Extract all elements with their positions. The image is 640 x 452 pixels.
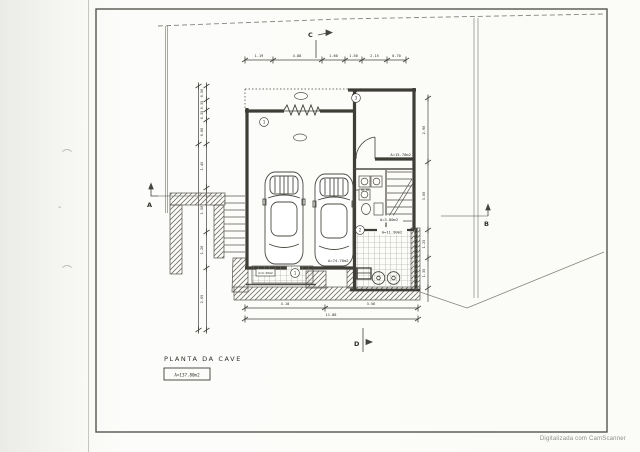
wc-fixtures xyxy=(359,176,383,215)
dim-left-7: 1.20 xyxy=(200,246,204,255)
storage-area-label: A=15.70m2 xyxy=(390,152,411,157)
dim-top-3: 1.60 xyxy=(329,54,338,58)
porch xyxy=(246,266,316,285)
plan-title: PLANTA DA CAVE xyxy=(164,355,242,363)
scanned-floorplan-page: C A B D xyxy=(0,0,640,452)
dim-left-3: 0.35 xyxy=(200,111,204,120)
section-marker-b: B xyxy=(484,220,489,228)
car-icon xyxy=(313,174,355,266)
dim-top-6: 0.70 xyxy=(392,54,401,58)
garage-level-marks xyxy=(294,93,308,142)
dim-left-6: 1.50 xyxy=(200,206,204,215)
dim-bottom-2: 3.56 xyxy=(367,302,376,306)
dim-right-4: 1.35 xyxy=(422,269,426,278)
garage-area-label: A=74.70m2 xyxy=(328,258,349,263)
dim-top-4: 1.50 xyxy=(349,54,358,58)
exterior-stairs xyxy=(224,196,245,252)
storage-room xyxy=(348,88,416,230)
dim-top-5: 2.15 xyxy=(370,54,379,58)
dim-left-5: 1.45 xyxy=(200,162,204,171)
dim-right-3: 1.25 xyxy=(422,240,426,249)
section-marker-a: A xyxy=(147,201,152,209)
dim-left-1: 0.50 xyxy=(200,89,204,98)
floorplan-drawing: C A B D xyxy=(0,0,640,452)
section-line-d xyxy=(363,328,372,352)
dim-top-1: 1.19 xyxy=(255,54,264,58)
dim-left-4: 0.80 xyxy=(200,128,204,137)
plan-title-area: A=137.80m2 xyxy=(174,373,200,378)
stair-hall-area-label: A=3.80m2 xyxy=(380,217,398,222)
scan-artifact: ⌒ xyxy=(62,146,72,161)
section-marker-d: D xyxy=(354,340,360,348)
dim-top-2: 4.88 xyxy=(293,54,302,58)
dim-right-1: 2.90 xyxy=(422,126,426,135)
camscanner-watermark: Digitalizada com CamScanner xyxy=(426,436,626,442)
laundry-area-label: A=11.90m2 xyxy=(382,230,403,235)
car-icon xyxy=(263,172,305,264)
dim-bottom-total: 11.88 xyxy=(326,313,337,317)
dim-left-2: 0.35 xyxy=(200,101,204,110)
porch-area-label: A=4.50m2 xyxy=(258,271,273,275)
dim-right-2: 3.00 xyxy=(422,192,426,201)
dim-bottom-1: 4.10 xyxy=(281,302,290,306)
section-line-b xyxy=(441,205,490,217)
title-block: PLANTA DA CAVE A=137.80m2 xyxy=(164,355,242,380)
section-marker-c: C xyxy=(308,31,313,39)
laundry-room xyxy=(350,228,420,291)
scan-artifact: ⌒ xyxy=(62,262,72,277)
dim-left-8: 2.05 xyxy=(200,295,204,304)
scan-artifact: - xyxy=(58,202,61,213)
